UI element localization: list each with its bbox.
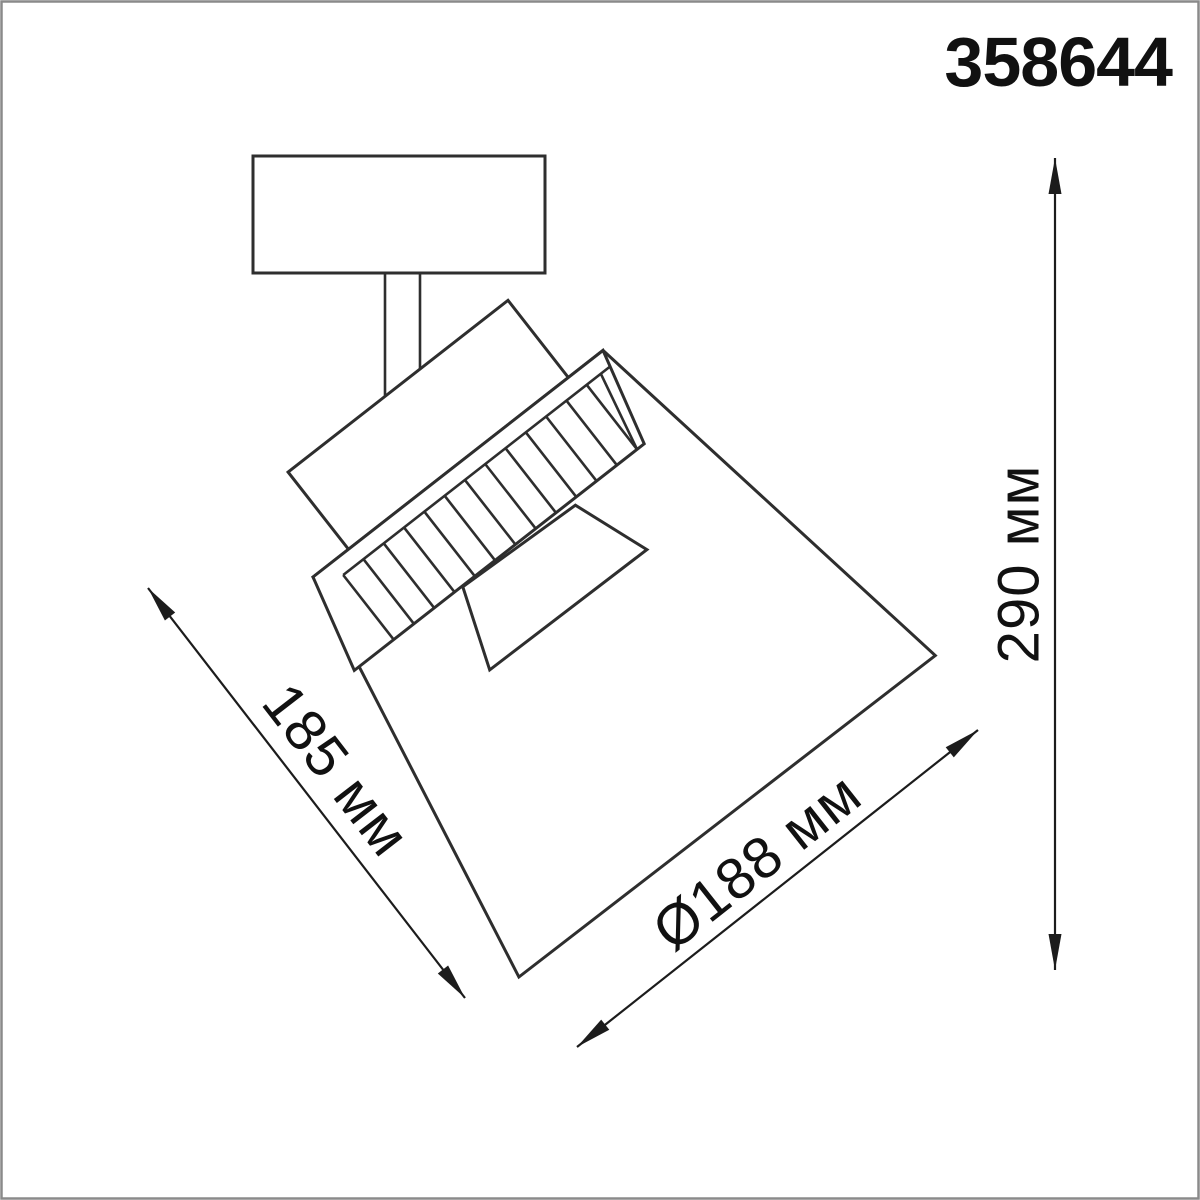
- arrowhead-icon: [438, 966, 465, 999]
- dim-label-height: 290 мм: [987, 465, 1052, 664]
- arrowhead-icon: [1049, 934, 1062, 970]
- dim-arrow-height: 290 мм: [987, 158, 1062, 970]
- mount-plate: [253, 156, 545, 273]
- arrowhead-icon: [577, 1020, 609, 1047]
- dimension-drawing-page: 358644 185 мм Ø188 мм 290 мм: [0, 0, 1200, 1200]
- arrowhead-icon: [148, 588, 175, 621]
- product-code: 358644: [944, 23, 1173, 101]
- technical-drawing: 358644 185 мм Ø188 мм 290 мм: [0, 0, 1200, 1200]
- arrowhead-icon: [946, 730, 978, 757]
- arrowhead-icon: [1049, 158, 1062, 194]
